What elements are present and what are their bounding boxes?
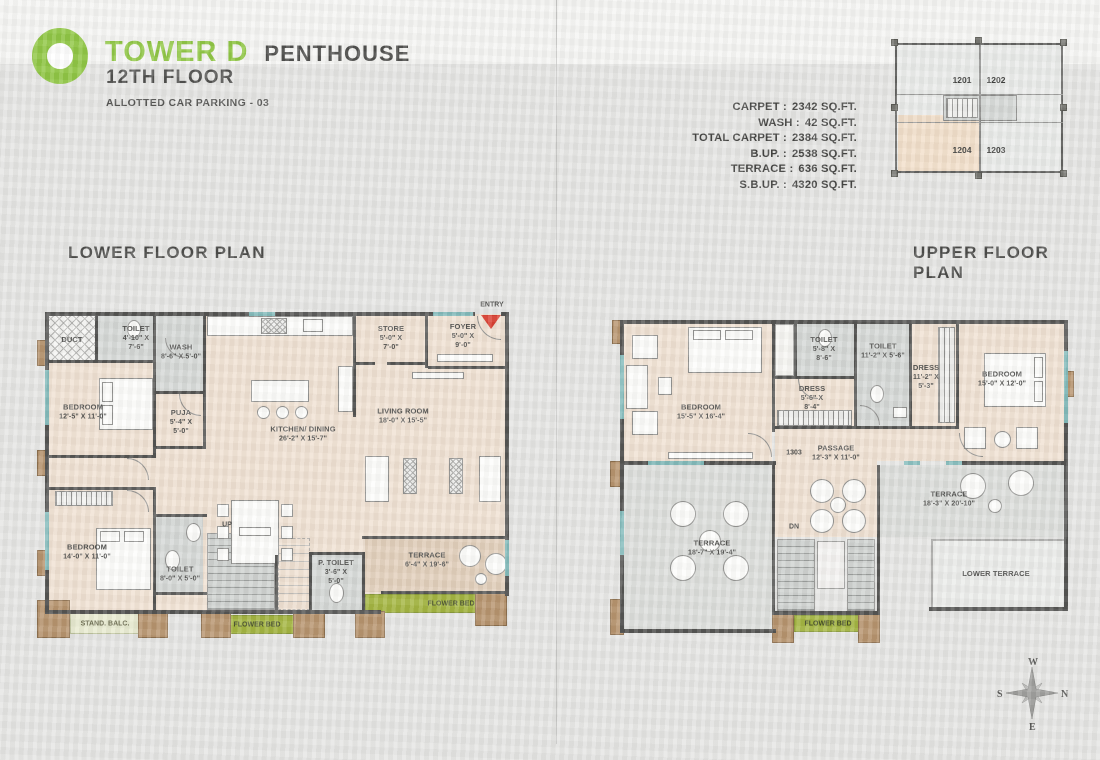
tv-console [412,372,464,379]
room-name: TERRACE [688,539,736,549]
chair [810,509,834,533]
column-block [858,611,880,643]
column-block [138,611,168,638]
stat-value: 2384 SQ.FT. [792,132,857,144]
key-plan-unit-1202: 1202 [987,75,1006,85]
room-name: TERRACE [923,490,975,500]
room-label-toilet1: TOILET5'-8" X 8'-6" [810,335,837,363]
key-plan-wall-h2 [897,122,1063,123]
chair [842,479,866,503]
room-name: BEDROOM [677,403,725,413]
flower-bed-label: FLOWER BED [427,601,474,608]
window [45,512,49,570]
wall [620,629,776,633]
column-block [475,592,507,626]
wall [203,394,206,449]
lower-floor-plan: ENTRY DUCT TOILET4'-10" X 7'-6" WASH8'-6… [35,300,515,650]
terrace-chair [723,555,749,581]
wall [309,552,365,555]
wc [870,385,884,403]
window [1064,351,1068,423]
dining-table-inner [239,527,271,536]
unit-number-label: 1303 [786,450,802,457]
room-dims: 5'-4" X 5'-0" [170,418,192,436]
window [620,511,624,555]
rug [449,458,463,494]
compass-w: W [1028,658,1038,668]
key-plan-column [891,170,898,177]
stat-row-wash: WASH :42 SQ.FT. [617,116,857,132]
room-dims: 14'-0" X 11'-0" [63,552,111,561]
room-dims: 4'-10" X 7'-6" [122,334,149,352]
room-name: DRESS [799,384,825,394]
stat-row-terrace: TERRACE :636 SQ.FT. [617,162,857,178]
pillow [100,531,120,542]
wall [353,362,375,365]
room-dims: 12'-5" X 11'-0" [59,412,107,421]
stat-label: WASH : [758,117,800,129]
room-label-terrace1: TERRACE18'-7" X 19'-4" [688,539,736,558]
key-plan-column [1060,170,1067,177]
terrace-chair [670,501,696,527]
wall [387,362,428,365]
room-label-dress2: DRESS11'-2" X 5'-3" [913,363,939,391]
flower-bed-label: FLOWER BED [233,622,280,629]
key-plan-highlight-unit-1204 [898,115,979,171]
stat-label: TERRACE : [731,163,794,175]
wall [362,536,509,539]
stat-row-bup: B.UP. :2538 SQ.FT. [617,147,857,163]
column-block [772,611,794,643]
entry-label: ENTRY [480,302,503,309]
room-name: LOWER TERRACE [962,569,1030,579]
pillow [1034,357,1043,378]
room-dims: 18'-7" X 19'-4" [688,548,736,557]
wall [956,461,1068,465]
room-label-toilet2: TOILET8'-0" X 5'-0" [160,565,200,584]
compass-rose: W N E S [995,658,1070,738]
wall [772,426,857,429]
room-name: WASH [161,343,201,353]
wall [153,360,156,458]
brochure-page: { "header": { "title": "TOWER D", "subti… [0,0,1100,760]
room-dims: 11'-2" X 5'-3" [913,373,939,391]
room-dims: 15'-0" X 12'-0" [978,379,1026,388]
dining-chair [281,548,293,561]
room-name: BEDROOM [63,543,111,553]
window [249,312,275,316]
sofa [479,456,501,502]
stat-label: TOTAL CARPET : [692,132,787,144]
area-statistics: CARPET :2342 SQ.FT. WASH :42 SQ.FT. TOTA… [617,100,857,194]
room-label-terrace: TERRACE6'-4" X 19'-6" [405,551,449,570]
tower-title: TOWER D [105,36,248,69]
room-dims: 5'-0" X 9'-0" [450,332,476,350]
room-name: TOILET [810,335,837,345]
room-label-wash: WASH8'-6" X 5'-0" [161,343,201,362]
stat-label: CARPET : [733,101,787,113]
room-label-store: STORE5'-0" X 7'-0" [378,324,404,352]
key-plan-stair-core [946,98,978,118]
room-name: BEDROOM [978,370,1026,380]
wall [153,490,156,614]
room-label-foyer: FOYER5'-0" X 9'-0" [450,322,476,350]
upper-plan-title: UPPER FLOOR PLAN [913,243,1100,283]
wall [428,366,509,369]
room-name: TOILET [861,342,905,352]
wc [329,583,344,603]
room-label-dress1: DRESS5'-6" X 8'-4" [799,384,825,412]
room-dims: 5'-8" X 8'-6" [810,345,837,363]
wall [929,607,1068,611]
room-label-terrace2: TERRACE18'-3" X 20'-10" [923,490,975,509]
stat-label: B.UP. : [750,148,787,160]
room-name: TERRACE [405,551,449,561]
room-label-duct: DUCT [61,335,82,345]
key-plan: 1201 1202 1204 1203 [885,33,1075,185]
page-divider [556,0,557,744]
room-label-bedroom2: BEDROOM14'-0" X 11'-0" [63,543,111,562]
room-dims: 11'-2" X 5'-6" [861,351,905,360]
flower-bed-label: FLOWER BED [804,621,851,628]
room-name: DUCT [61,335,82,345]
pantry-cabinet [338,366,353,412]
terrace-chair [723,501,749,527]
staircase-landing [817,541,845,589]
key-plan-column [891,104,898,111]
column-block [201,611,231,638]
wall [620,320,1068,324]
room-dims: 12'-3" X 11'-0" [812,453,860,462]
key-plan-column [975,172,982,179]
wall [153,514,207,517]
floor-label: 12TH FLOOR [106,67,234,89]
wall [909,320,912,429]
dn-label: DN [789,524,799,531]
terrace-chair [1008,470,1034,496]
window [904,461,920,465]
room-dims: 5'-6" X 8'-4" [799,394,825,412]
wardrobe [938,327,955,423]
key-plan-column [1060,39,1067,46]
table [830,497,846,513]
room-dims: 15'-5" X 16'-4" [677,412,725,421]
room-dims: 8'-0" X 5'-0" [160,574,200,583]
compass-e: E [1029,722,1036,733]
room-dims: 18'-0" X 15'-5" [377,416,429,425]
side-table [658,377,672,395]
room-name: STORE [378,324,404,334]
room-dims: 3'-6" X 5'-0" [318,568,354,586]
washbasin [186,523,201,542]
foyer-cabinet [437,354,493,362]
upper-floor-plan: BEDROOM15'-5" X 16'-4" TOILET5'-8" X 8'-… [608,315,1078,655]
room-label-toilet2: TOILET11'-2" X 5'-6" [861,342,905,361]
wall [156,446,206,449]
washbasin [893,407,907,418]
room-name: PASSAGE [812,444,860,454]
key-plan-unit-1203: 1203 [987,145,1006,155]
wall [95,312,98,362]
wall [425,312,428,368]
wall [203,312,206,394]
kitchen-island [251,380,309,402]
stat-value: 636 SQ.FT. [798,163,857,175]
stat-value: 2342 SQ.FT. [792,101,857,113]
sink [303,319,323,332]
room-dims: 18'-3" X 20'-10" [923,499,975,508]
wall [353,362,356,417]
title-row: TOWER D PENTHOUSE [105,36,410,69]
room-name: KITCHEN/ DINING [270,425,335,435]
wall [353,312,356,365]
armchair [632,411,658,435]
wall [45,487,156,490]
room-label-passage: PASSAGE12'-3" X 11'-0" [812,444,860,463]
key-plan-column [1060,104,1067,111]
penthouse-subtitle: PENTHOUSE [264,41,410,67]
chair [810,479,834,503]
stat-row-total-carpet: TOTAL CARPET :2384 SQ.FT. [617,131,857,147]
room-label-kitchen: KITCHEN/ DINING26'-2" X 15'-7" [270,425,335,444]
wall [153,312,156,362]
wall [153,592,207,595]
key-plan-column [891,39,898,46]
terrace-chair [485,553,507,575]
pillow [693,330,721,340]
key-plan-wall-h1 [897,94,1063,95]
lower-plan-title: LOWER FLOOR PLAN [68,243,266,263]
window [45,370,49,425]
key-plan-unit-1201: 1201 [953,75,972,85]
chair [842,509,866,533]
stat-value: 2538 SQ.FT. [792,148,857,160]
wall [772,611,880,615]
terrace-table [475,573,487,585]
stand-balc-label: STAND. BALC. [81,621,130,628]
car-parking-label: ALLOTTED CAR PARKING - 03 [106,97,269,109]
room-fill-hall [857,429,959,461]
wall [772,465,775,613]
stool [257,406,270,419]
dining-chair [217,548,229,561]
room-label-bedroom1: BEDROOM12'-5" X 11'-0" [59,403,107,422]
wall [956,320,959,429]
stool [295,406,308,419]
wall [877,465,880,613]
pillow [124,531,144,542]
staircase [847,539,875,611]
brand-ring-logo-icon [32,28,88,84]
window [620,355,624,419]
stove [261,318,287,334]
column-block [37,600,70,638]
dining-chair [217,504,229,517]
key-plan-column [975,37,982,44]
sofa [365,456,389,502]
stat-row-sbup: S.B.UP. :4320 SQ.FT. [617,178,857,194]
wall [362,552,365,614]
dining-chair [281,504,293,517]
stat-row-carpet: CARPET :2342 SQ.FT. [617,100,857,116]
staircase [777,539,815,611]
wall [309,552,312,614]
wall [45,455,156,458]
room-dims: 5'-0" X 7'-0" [378,334,404,352]
terrace-chair [670,555,696,581]
room-name: TOILET [122,324,149,334]
compass-s: S [997,689,1003,700]
compass-n: N [1061,689,1069,700]
terrace-table [988,499,1002,513]
chair [1016,427,1038,449]
pillow [1034,381,1043,402]
window [433,312,473,316]
stat-value: 42 SQ.FT. [805,117,857,129]
column-block [355,611,385,638]
tv-console [668,452,753,459]
room-label-toilet1: TOILET4'-10" X 7'-6" [122,324,149,352]
rug [403,458,417,494]
stat-value: 4320 SQ.FT. [792,179,857,191]
terrace-chair [459,545,481,567]
wall [45,360,156,363]
room-label-lower-terrace: LOWER TERRACE [962,569,1030,579]
wall [45,610,381,614]
room-dims: 8'-6" X 5'-0" [161,352,201,361]
pillow [102,382,113,402]
column-block [293,611,325,638]
room-name: P. TOILET [318,558,354,568]
wall [854,426,959,429]
up-label: UP [222,522,232,529]
room-label-living: LIVING ROOM18'-0" X 15'-5" [377,407,429,426]
wall [381,591,509,594]
compass-star-main [1006,667,1058,719]
room-label-bedroom1: BEDROOM15'-5" X 16'-4" [677,403,725,422]
pillow [725,330,753,340]
table [994,431,1011,448]
room-label-ptoilet: P. TOILET3'-6" X 5'-0" [318,558,354,586]
window [946,461,962,465]
armchair [632,335,658,359]
wall [794,324,797,378]
room-dims: 26'-2" X 15'-7" [270,434,335,443]
wardrobe [55,491,113,506]
key-plan-wall-v [979,45,981,171]
stool [276,406,289,419]
key-plan-unit-1204: 1204 [953,145,972,155]
wall [275,555,278,614]
dining-chair [281,526,293,539]
room-name: LIVING ROOM [377,407,429,417]
room-label-bedroom2: BEDROOM15'-0" X 12'-0" [978,370,1026,389]
room-name: FOYER [450,322,476,332]
room-name: PUJA [170,408,192,418]
window [648,461,704,465]
room-label-puja: PUJA5'-4" X 5'-0" [170,408,192,436]
room-fill-closet [775,324,794,376]
sofa [626,365,648,409]
wardrobe [777,410,852,426]
room-name: BEDROOM [59,403,107,413]
window [505,540,509,576]
room-dims: 6'-4" X 19'-6" [405,560,449,569]
room-name: DRESS [913,363,939,373]
stat-label: S.B.UP. : [739,179,787,191]
entry-arrow-icon [481,315,501,329]
wall [854,320,857,429]
room-name: TOILET [160,565,200,575]
